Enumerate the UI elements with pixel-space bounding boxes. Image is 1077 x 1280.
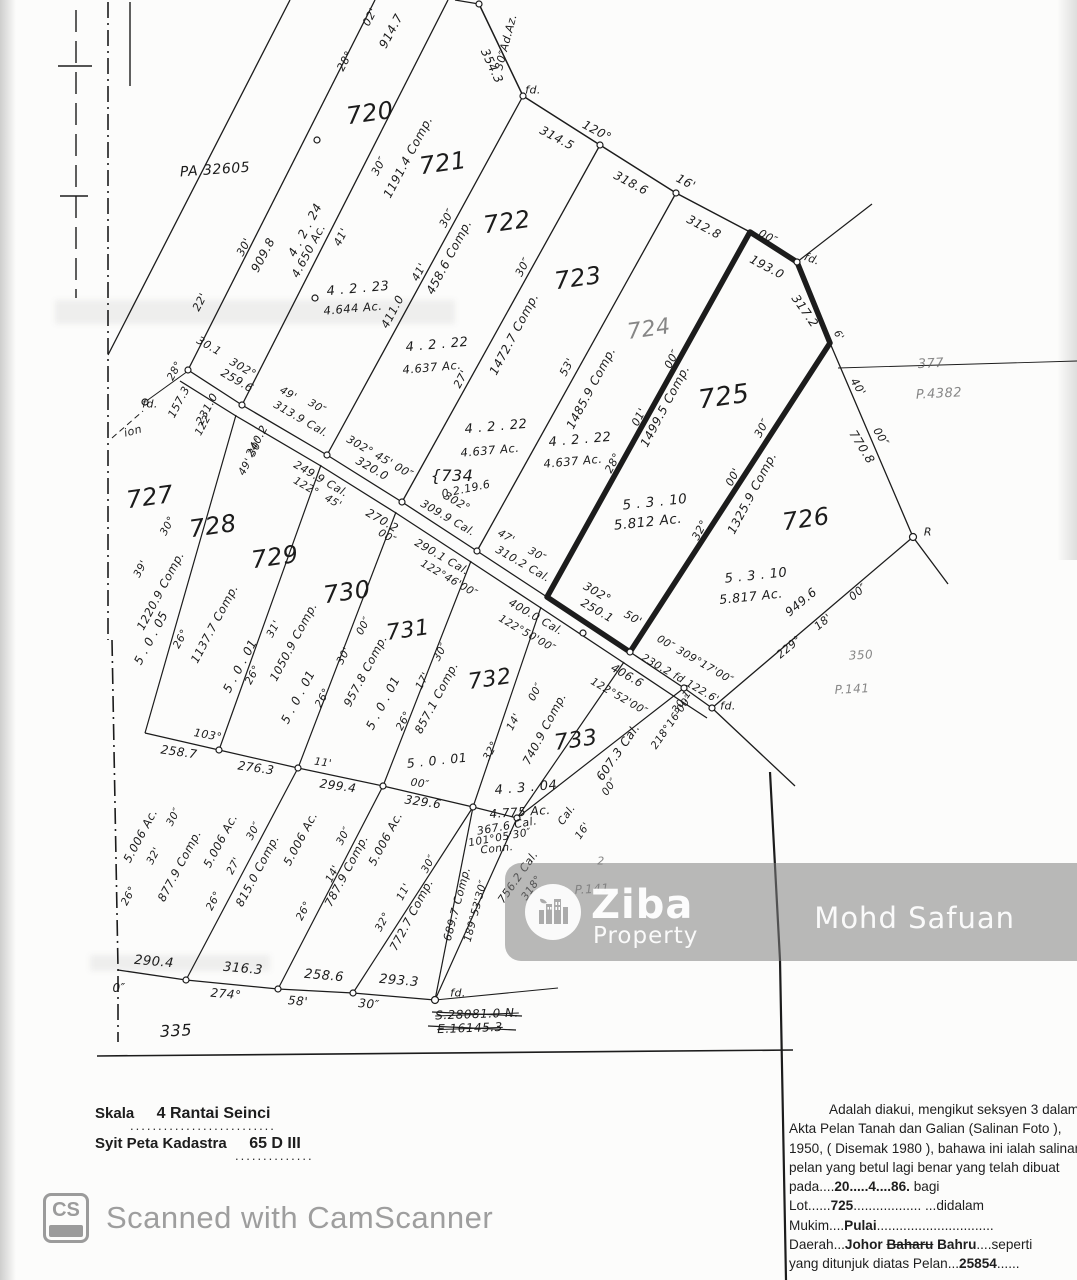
- certification-line: Mukim....Pulai..........................…: [789, 1216, 1070, 1235]
- certification-segment: Johor: [845, 1237, 887, 1252]
- certification-line: yang ditunjuk diatas Pelan...25854......: [789, 1254, 1070, 1273]
- certification-segment: 25854: [959, 1256, 997, 1271]
- map-label: 335: [160, 1022, 193, 1040]
- map-label: 728: [188, 511, 238, 541]
- ziba-logo-icon: [525, 884, 581, 940]
- certification-line: 1950, ( Disemak 1980 ), bahawa ini ialah…: [789, 1139, 1070, 1158]
- camscanner-label: Scanned with CamScanner: [106, 1200, 566, 1236]
- agent-name-watermark: Mohd Safuan: [814, 901, 1015, 935]
- certification-segment: ......: [997, 1256, 1020, 1271]
- map-label: 724: [626, 316, 672, 344]
- certification-segment: bagi: [910, 1179, 939, 1194]
- ziba-watermark-band: Ziba Property Mohd Safuan: [505, 863, 1077, 961]
- map-label: 258.6: [304, 968, 345, 984]
- cross-boundary: [145, 733, 517, 818]
- certification-line: pada....20.....4....86. bagi: [789, 1177, 1070, 1196]
- scale-row: Skala 4 Rantai Seinci ..................…: [95, 1105, 395, 1135]
- certification-line: Daerah...Johor Baharu Bahru....seperti: [789, 1235, 1070, 1254]
- dotted-leader: ..........................: [130, 1118, 276, 1133]
- map-label: 731: [385, 617, 431, 645]
- camscanner-badge-text: CS: [46, 1196, 86, 1224]
- map-label: 729: [250, 542, 300, 572]
- map-label: fd.: [450, 988, 466, 999]
- map-label: 722: [482, 207, 532, 237]
- map-label: R: [924, 527, 932, 538]
- map-label: 377: [918, 357, 945, 371]
- buildings-icon: [537, 896, 569, 928]
- certification-line: Adalah diakui, mengikut seksyen 3 dalam: [789, 1100, 1070, 1119]
- certification-segment: Pulai: [844, 1218, 876, 1233]
- map-label: 732: [467, 666, 513, 694]
- dotted-leader: ..............: [235, 1148, 314, 1163]
- certification-segment: yang ditunjuk diatas Pelan...: [789, 1256, 959, 1271]
- map-label: S.28081.0 N.: [435, 1007, 519, 1022]
- map-label: 733: [553, 727, 599, 755]
- certification-segment: ....seperti: [976, 1237, 1032, 1252]
- map-label: fd.: [720, 701, 736, 712]
- top-boundary-road: [479, 4, 750, 232]
- camscanner-icon: CS: [43, 1193, 89, 1243]
- certification-segment: .................. ...didalam: [853, 1198, 984, 1213]
- certification-line: Lot......725.................. ...didala…: [789, 1196, 1070, 1215]
- map-label: 30″: [358, 997, 380, 1011]
- map-label: 730: [322, 577, 372, 607]
- certification-segment: Lot......: [789, 1198, 831, 1213]
- certification-segment: Akta Pelan Tanah dan Galian (Salinan Fot…: [789, 1121, 1062, 1136]
- map-label: 721: [418, 148, 468, 178]
- certification-segment: Mukim....: [789, 1218, 844, 1233]
- certification-segment: Adalah diakui, mengikut seksyen 3 dalam: [829, 1102, 1077, 1117]
- map-label: fd.: [525, 85, 541, 96]
- certification-segment: Bahru: [937, 1237, 976, 1252]
- map-label: P.4382: [916, 386, 963, 401]
- certification-line: pelan yang betul lagi benar yang telah d…: [789, 1158, 1070, 1177]
- map-label: 720: [345, 98, 395, 128]
- map-label: 274°: [210, 987, 242, 1002]
- map-label: 350: [848, 648, 873, 661]
- map-label: 723: [553, 263, 603, 293]
- certification-segment: Daerah...: [789, 1237, 845, 1252]
- sheet-row: Syit Peta Kadastra 65 D III ............…: [95, 1135, 395, 1165]
- ziba-brand-text: Ziba: [591, 885, 693, 925]
- scale-label: Skala: [95, 1105, 134, 1122]
- map-label: 726: [781, 504, 831, 534]
- certification-line: Akta Pelan Tanah dan Galian (Salinan Fot…: [789, 1119, 1070, 1138]
- plan-footer: Skala 4 Rantai Seinci ..................…: [95, 1105, 395, 1165]
- sheet-label: Syit Peta Kadastra: [95, 1135, 227, 1152]
- ziba-brand-subtext: Property: [593, 925, 698, 948]
- map-label: 00″: [410, 777, 430, 790]
- map-label: 58': [287, 994, 308, 1008]
- map-label: 725: [697, 381, 751, 414]
- certification-segment: 1950, ( Disemak 1980 ), bahawa ini ialah…: [789, 1141, 1077, 1156]
- map-label: 316.3: [223, 961, 264, 977]
- sheet-border-bottom: [97, 1050, 793, 1056]
- scanned-survey-plan: PA 3260572072172272372472572672772872973…: [0, 0, 1077, 1280]
- certification-segment: pada....: [789, 1179, 834, 1194]
- map-label: 293.3: [379, 973, 420, 989]
- certification-segment: pelan yang betul lagi benar yang telah d…: [789, 1160, 1060, 1175]
- certification-segment: 725: [831, 1198, 854, 1213]
- map-label: 0″: [112, 982, 125, 994]
- camscanner-badge-bar: [49, 1225, 83, 1237]
- certification-segment: ...............................: [877, 1218, 994, 1233]
- certification-text: Adalah diakui, mengikut seksyen 3 dalamA…: [789, 1100, 1070, 1274]
- map-label: P.141: [834, 682, 869, 696]
- paper-fold-line: [770, 772, 786, 1280]
- certification-segment: 20.....4....86.: [834, 1179, 910, 1194]
- map-label: fd.: [142, 399, 158, 410]
- map-label: 727: [125, 482, 175, 512]
- map-label: E.16145.3: [437, 1021, 503, 1035]
- map-label: 290.4: [134, 954, 175, 970]
- certification-segment: Baharu: [886, 1237, 933, 1252]
- map-label: 11': [313, 757, 332, 770]
